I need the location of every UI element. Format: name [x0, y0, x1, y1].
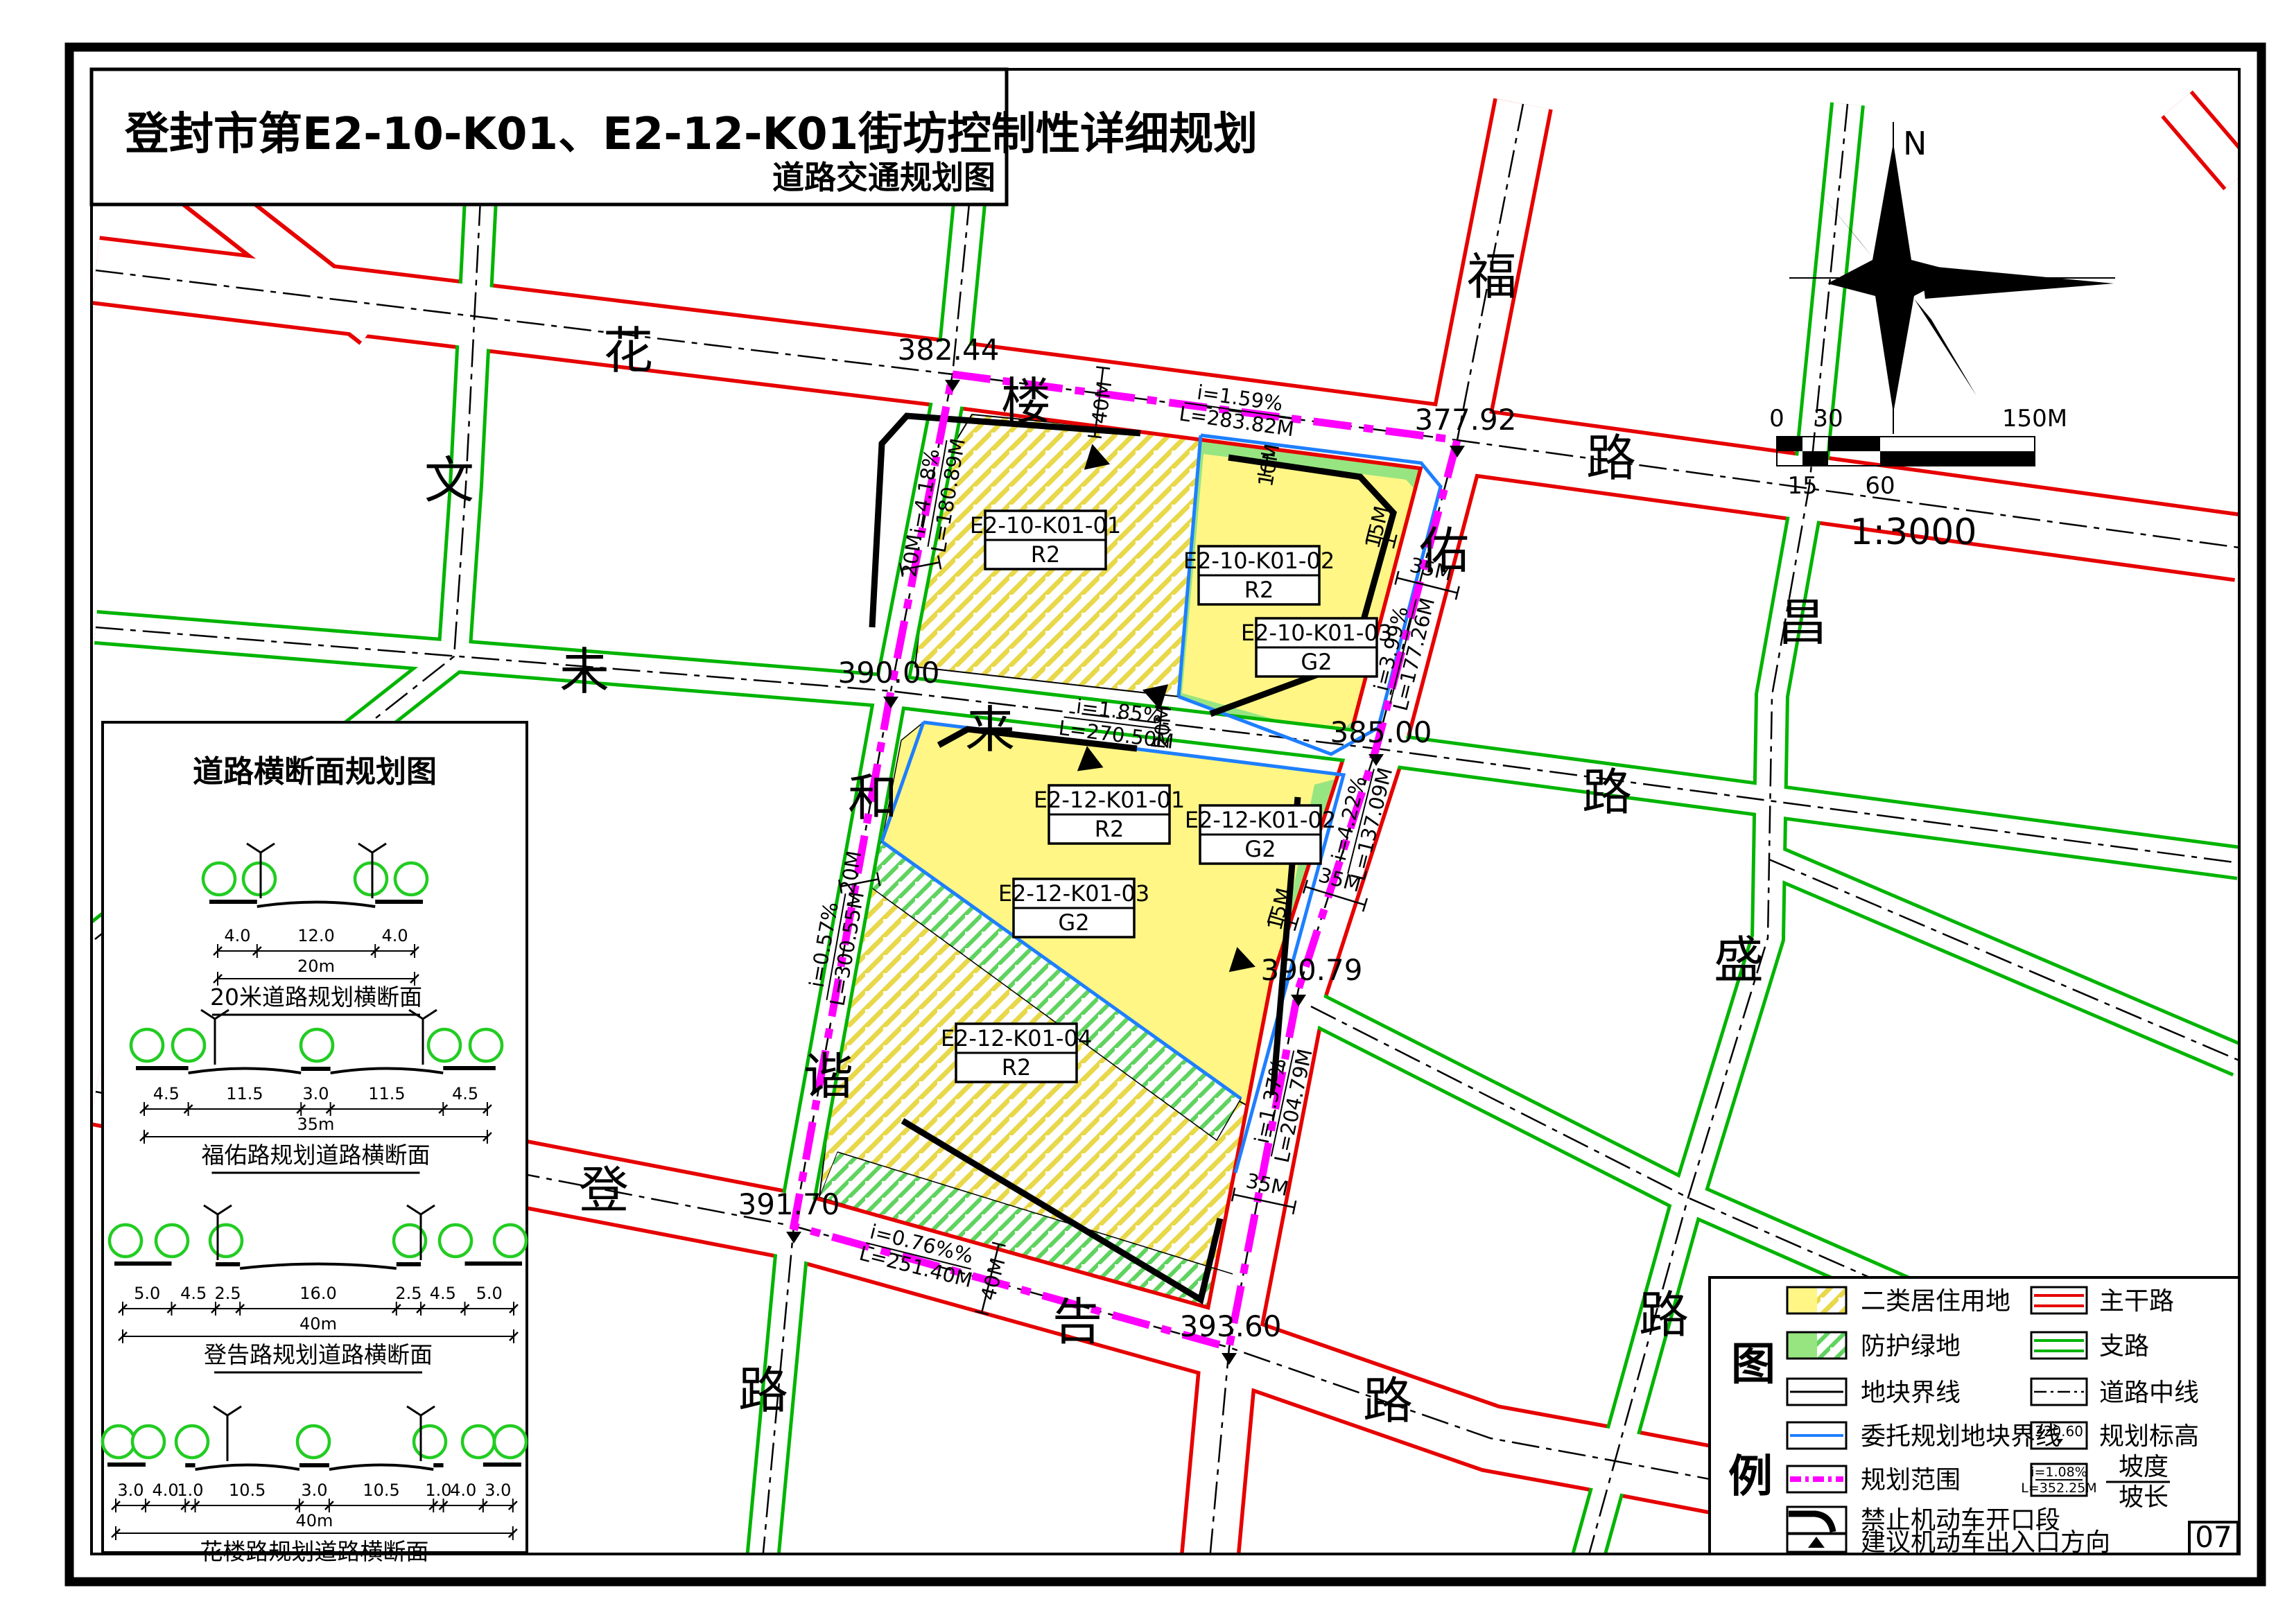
page-title: 登封市第E2-10-K01、E2-12-K01街坊控制性详细规划 [124, 109, 1258, 160]
parcel-label: E2-12-K01-04R2 [941, 1024, 1092, 1082]
parcel-label: E2-10-K01-02R2 [1183, 546, 1335, 604]
section-dim: 10.5 [363, 1481, 399, 1500]
legend-swatch-boundary [1787, 1466, 1846, 1492]
tree-icon [297, 1426, 329, 1458]
tree-icon [110, 1225, 141, 1257]
parcel-label: E2-10-K01-03G2 [1241, 618, 1392, 676]
section-total: 35m [297, 1115, 334, 1134]
section-dim: 3.0 [117, 1481, 144, 1500]
legend-label: 委托规划地块界线 [1861, 1422, 2060, 1451]
section-dim: 3.0 [485, 1481, 511, 1500]
section-dim: 4.5 [180, 1284, 207, 1303]
legend-label: 建议机动车出入口方向 [1861, 1528, 2110, 1557]
tree-icon [176, 1426, 208, 1458]
legend-label: 坡长 [2119, 1483, 2169, 1512]
tree-icon [494, 1426, 526, 1458]
road-name-char: 路 [1639, 1286, 1689, 1344]
parcel-label: E2-12-K01-02G2 [1185, 805, 1336, 864]
road-name-char: 路 [1582, 763, 1632, 821]
svg-text:20M: 20M [1149, 705, 1176, 749]
section-caption: 登告路规划道路横断面 [204, 1341, 433, 1368]
legend-swatch-entrance [1787, 1534, 1846, 1552]
tree-icon [173, 1029, 205, 1061]
section-dim: 1.0 [425, 1481, 451, 1500]
legend-label: 二类居住用地 [1861, 1287, 2010, 1316]
road-name-char: 昌 [1778, 593, 1827, 652]
legend-swatch-delegate-line [1787, 1422, 1846, 1449]
parcel-use: G2 [1301, 649, 1332, 675]
parcel-use: R2 [1244, 577, 1274, 603]
section-dim: 12.0 [297, 926, 334, 945]
legend-label: 规划标高 [2099, 1422, 2199, 1451]
title-block: 登封市第E2-10-K01、E2-12-K01街坊控制性详细规划 道路交通规划图 [92, 69, 1258, 204]
spot-elevation: 390.79 [1261, 953, 1363, 987]
section-total: 40m [299, 1314, 337, 1334]
road-name-char: 路 [1363, 1372, 1413, 1430]
page-subtitle: 道路交通规划图 [772, 159, 996, 196]
section-dim: 4.0 [224, 926, 250, 945]
road-name-char: 路 [738, 1361, 788, 1420]
spot-elevation: 393.60 [1180, 1309, 1282, 1343]
section-dim: 5.0 [476, 1284, 503, 1303]
legend-slope-sample-l: L=352.25M [2021, 1481, 2096, 1496]
tree-icon [301, 1029, 333, 1061]
legend-title-char: 图 [1731, 1339, 1775, 1390]
road-name-char: 谐 [803, 1047, 853, 1106]
tree-icon [131, 1029, 163, 1061]
legend-label: 防护绿地 [1861, 1332, 1961, 1361]
legend-label: 道路中线 [2099, 1379, 2199, 1407]
tree-icon [156, 1225, 188, 1257]
parcel-code: E2-12-K01-03 [998, 880, 1149, 907]
spot-elevation: 391.70 [738, 1187, 840, 1221]
spot-elevation: 377.92 [1415, 403, 1517, 437]
cross-section-title: 道路横断面规划图 [193, 754, 437, 789]
width-dimension: 20M [1148, 704, 1178, 751]
section-dim: 4.0 [153, 1481, 179, 1500]
legend-label: 支路 [2099, 1332, 2149, 1361]
section-dim: 4.5 [153, 1084, 180, 1103]
tree-icon [470, 1029, 502, 1061]
parcel-label: E2-10-K01-01R2 [970, 511, 1121, 569]
scale-ratio: 1:3000 [1850, 512, 1977, 553]
tree-icon [203, 863, 235, 895]
legend-swatch-slope: i=1.08% L=352.25M [2021, 1464, 2096, 1496]
compass-east-wing-icon [1921, 265, 2114, 299]
section-caption: 花楼路规划道路横断面 [200, 1538, 428, 1565]
parcel-label: E2-12-K01-01R2 [1034, 785, 1185, 844]
scale-tick: 15 [1787, 472, 1817, 500]
spot-elevation: 382.44 [898, 333, 1000, 367]
legend-label: 地块界线 [1861, 1379, 1961, 1407]
scale-tick: 60 [1865, 472, 1895, 500]
parcel-use: R2 [1095, 816, 1124, 842]
road-name-char: 文 [424, 451, 474, 509]
legend-label: 坡度 [2119, 1453, 2169, 1481]
spot-elevation: 385.00 [1330, 715, 1432, 749]
section-total: 20m [297, 957, 335, 976]
plan-drawing: 花楼路文未来路和谐路登告路福佑昌盛路382.44377.92390.00385.… [0, 0, 2294, 1621]
tree-icon [462, 1426, 494, 1458]
road-name-char: 告 [1052, 1293, 1102, 1351]
tree-icon [355, 863, 387, 895]
tree-icon [395, 863, 427, 895]
legend-swatch-parcel-line [1787, 1379, 1846, 1405]
section-dim: 2.5 [395, 1284, 422, 1303]
legend-swatch-main-road [2031, 1287, 2087, 1313]
parcel-use: G2 [1244, 836, 1276, 862]
section-dim: 4.5 [430, 1284, 456, 1303]
legend-slope-sample-i: i=1.08% [2031, 1465, 2087, 1480]
tree-icon [243, 863, 275, 895]
tree-icon [440, 1225, 471, 1257]
parcel-use: G2 [1058, 909, 1089, 936]
parcel-code: E2-10-K01-03 [1241, 620, 1392, 646]
tree-icon [414, 1426, 446, 1458]
road-name-char: 楼 [1001, 372, 1051, 430]
legend-swatch-branch-road [2031, 1332, 2087, 1359]
legend-title-char: 例 [1728, 1451, 1773, 1503]
section-dim: 4.0 [450, 1481, 476, 1500]
parcel-label: E2-12-K01-03G2 [998, 879, 1149, 937]
section-total: 40m [295, 1511, 333, 1530]
legend-swatch-greenspace [1787, 1332, 1846, 1359]
section-dim: 11.5 [368, 1084, 405, 1103]
parcel-use: R2 [1002, 1054, 1032, 1081]
parcel-code: E2-12-K01-01 [1034, 787, 1185, 813]
scale-tick: 30 [1813, 405, 1843, 433]
section-dim: 10.5 [229, 1481, 266, 1500]
section-caption: 福佑路规划道路横断面 [201, 1142, 430, 1169]
section-dim: 5.0 [134, 1284, 160, 1303]
road-name-char: 未 [559, 643, 609, 701]
legend: 图 例 [1710, 1277, 2239, 1557]
road-name-char: 花 [603, 322, 653, 380]
section-dim: 3.0 [302, 1084, 329, 1103]
parcel-code: E2-12-K01-02 [1185, 807, 1336, 833]
cross-section-panel: 道路横断面规划图 4.012.04.020m20米道路规划横断面4.511.53… [103, 722, 527, 1565]
section-dim: 1.0 [177, 1481, 203, 1500]
tree-icon [494, 1225, 526, 1257]
road-name-char: 来 [965, 701, 1015, 759]
tree-icon [132, 1426, 164, 1458]
legend-swatch-residential [1787, 1287, 1846, 1313]
parcel-use: R2 [1031, 541, 1061, 568]
parcel-code: E2-12-K01-04 [941, 1025, 1092, 1051]
road-name-char: 福 [1467, 247, 1517, 306]
road-name-char: 路 [1586, 429, 1636, 487]
spot-elevation: 390.00 [838, 656, 940, 690]
section-dim: 3.0 [301, 1481, 327, 1500]
tree-icon [103, 1426, 134, 1458]
legend-swatch-no-opening [1787, 1507, 1846, 1533]
section-dim: 2.5 [214, 1284, 241, 1303]
road-name-char: 登 [579, 1161, 629, 1219]
compass-se-wing-icon [1914, 299, 1976, 396]
parcel-code: E2-10-K01-02 [1183, 548, 1335, 574]
parcel-code: E2-10-K01-01 [970, 512, 1121, 539]
tree-icon [210, 1225, 242, 1257]
section-dim: 4.5 [452, 1084, 478, 1103]
page-number: 07 [2195, 1520, 2232, 1554]
page-number-box: 07 [2189, 1520, 2238, 1554]
tree-icon [428, 1029, 460, 1061]
legend-label: 主干路 [2099, 1287, 2174, 1316]
legend-label: 规划范围 [1861, 1466, 1961, 1494]
scale-tick: 0 [1769, 405, 1784, 433]
north-label: N [1903, 125, 1927, 162]
section-dim: 4.0 [382, 926, 408, 945]
road-name-char: 和 [848, 769, 898, 827]
section-dim: 11.5 [226, 1084, 263, 1103]
scale-tick: 150M [2002, 405, 2067, 433]
section-dim: 16.0 [299, 1284, 336, 1303]
legend-swatch-centerline [2031, 1379, 2087, 1405]
section-caption: 20米道路规划横断面 [210, 984, 422, 1011]
road-name-char: 盛 [1714, 931, 1764, 989]
